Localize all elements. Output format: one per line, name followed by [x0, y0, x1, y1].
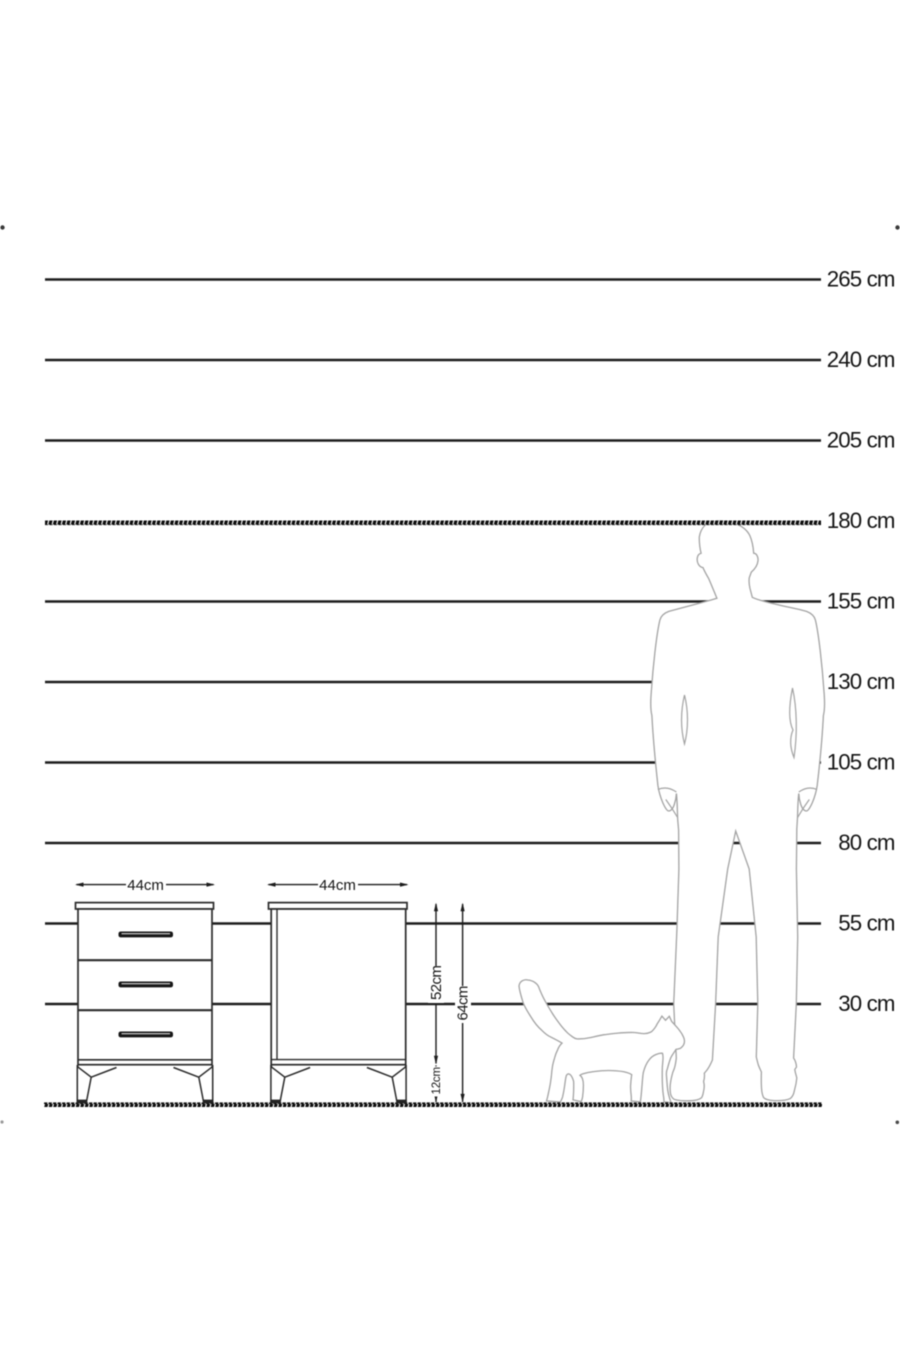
svg-text:105 cm: 105 cm [827, 749, 895, 774]
svg-text:44cm: 44cm [319, 877, 356, 894]
svg-text:30 cm: 30 cm [838, 991, 895, 1016]
svg-text:44cm: 44cm [127, 877, 164, 894]
svg-text:205 cm: 205 cm [827, 427, 895, 452]
svg-text:240 cm: 240 cm [827, 347, 895, 372]
svg-text:155 cm: 155 cm [827, 588, 895, 613]
svg-text:12cm: 12cm [431, 1067, 443, 1094]
svg-text:80 cm: 80 cm [838, 830, 895, 855]
svg-text:265 cm: 265 cm [827, 266, 895, 291]
svg-text:55 cm: 55 cm [838, 910, 895, 935]
svg-text:180 cm: 180 cm [827, 508, 895, 533]
svg-text:130 cm: 130 cm [827, 669, 895, 694]
svg-text:52cm: 52cm [428, 966, 445, 1000]
svg-text:64cm: 64cm [455, 986, 472, 1020]
